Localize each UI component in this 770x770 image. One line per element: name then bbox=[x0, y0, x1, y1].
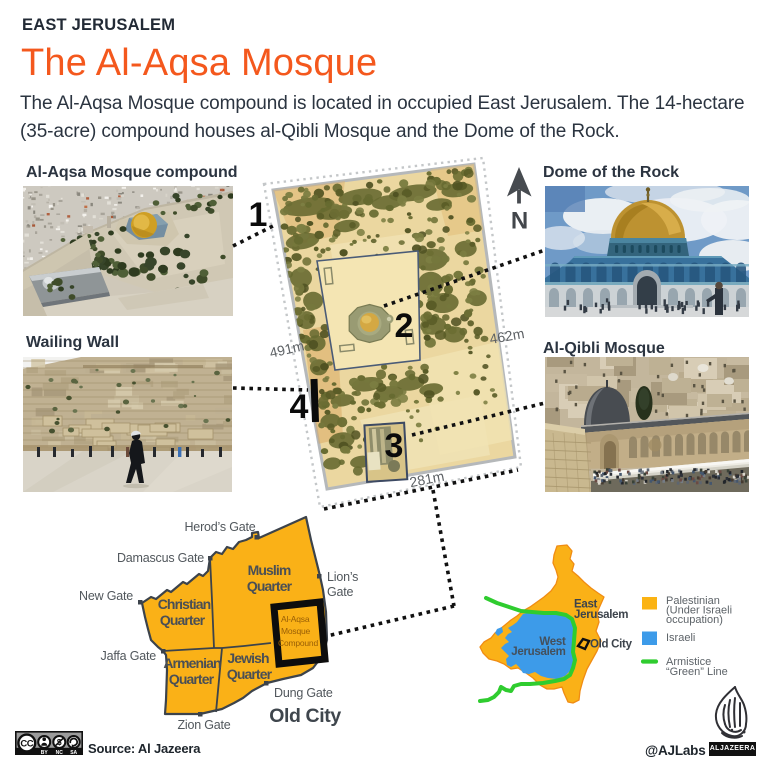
svg-text:Israeli: Israeli bbox=[666, 632, 695, 644]
svg-text:SA: SA bbox=[70, 750, 77, 755]
svg-text:Jerusalem: Jerusalem bbox=[511, 646, 565, 658]
svg-text:CC: CC bbox=[20, 739, 33, 750]
svg-text:occupation): occupation) bbox=[666, 614, 723, 626]
svg-text:BY: BY bbox=[41, 750, 49, 755]
svg-text:Jerusalem: Jerusalem bbox=[574, 609, 628, 621]
svg-text:“Green” Line: “Green” Line bbox=[666, 666, 728, 678]
svg-text:Old City: Old City bbox=[590, 639, 633, 651]
svg-text:NC: NC bbox=[56, 750, 64, 755]
